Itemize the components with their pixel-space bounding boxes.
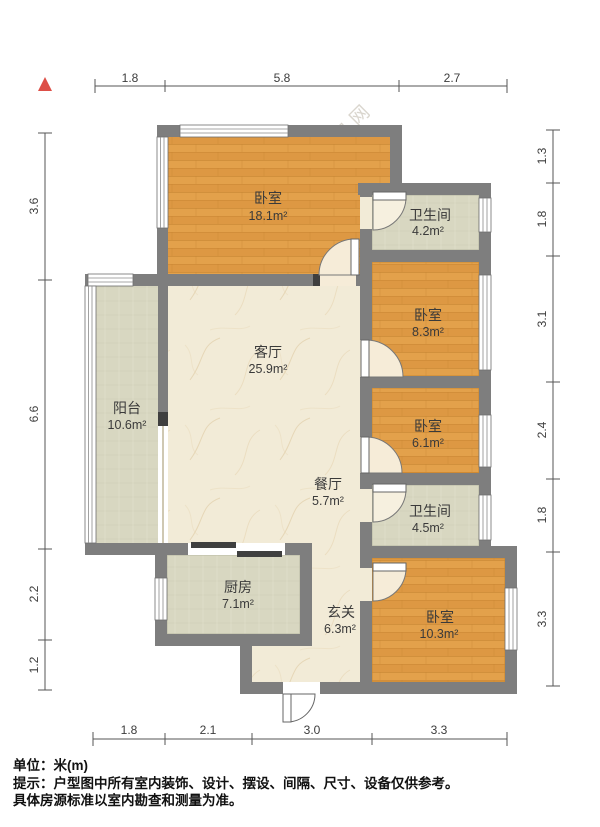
label-bedroom-right-upper: 卧室 8.3m²: [412, 307, 444, 339]
room-name: 卧室: [414, 418, 442, 435]
wall-segment: [300, 543, 312, 646]
door-opening: [360, 568, 372, 601]
dimension-value: 1.8: [535, 506, 549, 523]
window: [157, 137, 168, 228]
dimension-value: 5.8: [274, 71, 291, 85]
label-bedroom-top: 卧室 18.1m²: [249, 190, 288, 223]
window: [479, 275, 491, 370]
door-entry: [283, 694, 315, 722]
dimension-value: 1.8: [121, 723, 138, 737]
dimension-right: 1.3 1.8 3.1 2.4 1.8 3.3: [535, 130, 560, 686]
door-jamb: [158, 412, 168, 426]
room-name: 阳台: [113, 401, 141, 417]
room-area: 18.1m²: [249, 209, 288, 223]
footer-note-1: 提示：户型图中所有室内装饰、设计、摆设、间隔、尺寸、设备仅供参考。: [13, 775, 459, 791]
wall-segment: [155, 634, 312, 646]
dimension-value: 2.1: [200, 723, 217, 737]
room-entry-floor: [252, 646, 312, 682]
door-jamb: [313, 274, 320, 286]
sliding-door-panel: [237, 551, 282, 557]
wall-segment: [360, 376, 491, 388]
window: [85, 286, 96, 543]
wall-segment: [158, 286, 168, 412]
door-opening: [320, 274, 356, 286]
dimension-left: 3.6 6.6 2.2 1.2: [27, 133, 52, 690]
dimension-bottom: 1.8 2.1 3.0 3.3: [93, 723, 507, 746]
label-bedroom-bottom: 卧室 10.3m²: [420, 609, 459, 641]
room-name: 卧室: [414, 307, 442, 324]
wall-segment: [390, 125, 402, 186]
room-name: 卧室: [426, 609, 454, 626]
wall-segment: [360, 546, 517, 558]
wall-segment: [360, 250, 491, 262]
dimension-value: 3.0: [304, 723, 321, 737]
dimension-top: 1.8 5.8 2.7: [95, 71, 507, 93]
room-area: 5.7m²: [312, 494, 344, 508]
dimension-value: 1.3: [535, 147, 549, 164]
room-area: 7.1m²: [222, 597, 254, 611]
footer-note-2: 具体房源标准以室内勘查和测量为准。: [12, 792, 243, 808]
footer-unit: 单位：米(m): [13, 757, 88, 773]
room-name: 餐厅: [314, 477, 342, 493]
door-opening: [360, 489, 372, 522]
dimension-value: 1.8: [122, 71, 139, 85]
door-opening: [283, 682, 320, 694]
wall-segment: [240, 682, 517, 694]
dimension-value: 2.4: [535, 421, 549, 438]
label-bedroom-right-mid: 卧室 6.1m²: [412, 418, 444, 450]
label-balcony: 阳台 10.6m²: [108, 401, 147, 432]
dimension-value: 3.3: [535, 610, 549, 627]
room-area: 4.5m²: [412, 521, 444, 535]
window: [180, 125, 288, 137]
room-name: 卧室: [254, 190, 282, 207]
room-area: 6.3m²: [324, 622, 356, 636]
dimension-value: 3.3: [431, 723, 448, 737]
dimension-value: 3.6: [27, 197, 41, 214]
floor-plan-svg: O房网 O房网 O房网 O房网: [0, 0, 600, 827]
room-name: 卫生间: [409, 208, 451, 224]
dimension-value: 6.6: [27, 405, 41, 422]
footer-notes: 单位：米(m) 提示：户型图中所有室内装饰、设计、摆设、间隔、尺寸、设备仅供参考…: [12, 757, 459, 808]
room-name: 客厅: [254, 344, 282, 361]
room-name: 厨房: [224, 580, 252, 596]
room-area: 4.2m²: [412, 224, 444, 238]
window: [479, 198, 491, 232]
label-kitchen: 厨房 7.1m²: [222, 580, 254, 611]
sliding-door-panel: [191, 542, 236, 548]
label-living: 客厅 25.9m²: [249, 344, 288, 376]
window: [479, 495, 491, 540]
room-area: 8.3m²: [412, 325, 444, 339]
window: [479, 415, 491, 467]
floor-plan-page: O房网 O房网 O房网 O房网: [0, 0, 600, 827]
room-name: 卫生间: [409, 504, 451, 520]
dimension-value: 2.2: [27, 585, 41, 602]
window: [155, 578, 167, 620]
door-opening: [360, 197, 372, 229]
room-name: 玄关: [327, 604, 355, 621]
room-area: 6.1m²: [412, 436, 444, 450]
dimension-value: 3.1: [535, 310, 549, 327]
dimension-value: 2.7: [444, 71, 461, 85]
window: [88, 274, 133, 286]
label-entry: 玄关 6.3m²: [324, 604, 356, 636]
north-indicator-icon: [38, 77, 52, 91]
window: [505, 588, 517, 650]
room-area: 10.6m²: [108, 418, 147, 432]
label-dining: 餐厅 5.7m²: [312, 477, 344, 508]
room-bedroom-top-floor: [168, 137, 390, 186]
dimension-value: 1.8: [535, 210, 549, 227]
room-area: 25.9m²: [249, 362, 288, 376]
dimension-value: 1.2: [27, 656, 41, 673]
room-area: 10.3m²: [420, 627, 459, 641]
wall-segment: [360, 473, 491, 485]
